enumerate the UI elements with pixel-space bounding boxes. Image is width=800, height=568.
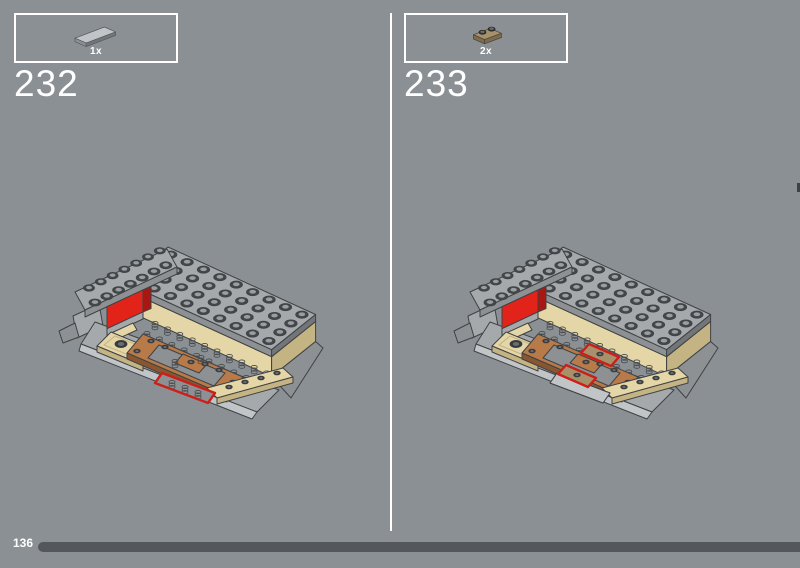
instruction-page: 1x 232 2x 233 136 bbox=[0, 0, 800, 568]
tile-1x6-light-gray-icon bbox=[53, 20, 139, 48]
model-illustration-step-233 bbox=[450, 230, 720, 420]
part-quantity-label: 1x bbox=[90, 46, 102, 57]
parts-callout-box-233: 2x bbox=[404, 13, 568, 63]
step-number-232: 232 bbox=[14, 64, 79, 105]
plate-1x2-dark-tan-icon bbox=[443, 20, 529, 48]
step-number-233: 233 bbox=[404, 64, 469, 105]
page-number: 136 bbox=[13, 536, 33, 550]
progress-bar[interactable] bbox=[38, 542, 800, 552]
panel-divider bbox=[390, 13, 392, 531]
part-quantity-label: 2x bbox=[480, 46, 492, 57]
model-illustration-step-232 bbox=[55, 230, 325, 420]
parts-callout-box-232: 1x bbox=[14, 13, 178, 63]
